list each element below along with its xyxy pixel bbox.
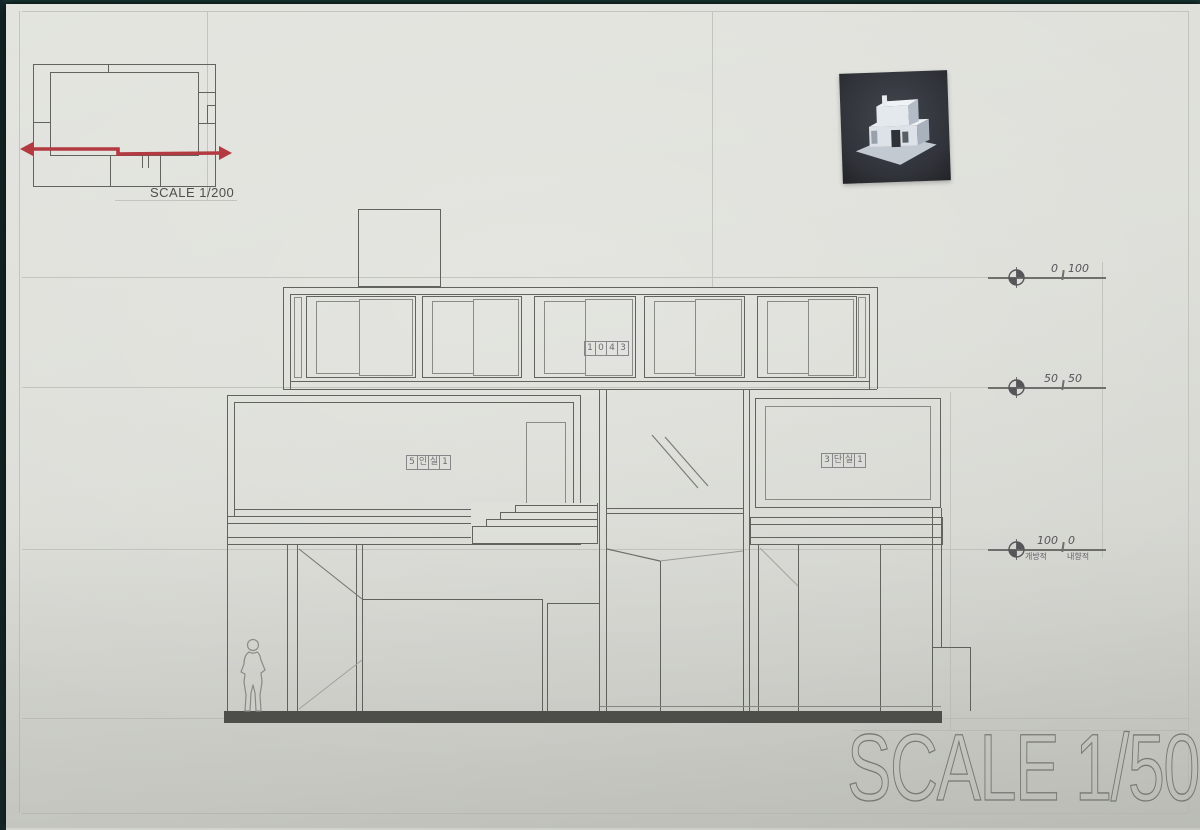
pencil-line — [750, 544, 943, 545]
stair-volume-perspective — [606, 546, 746, 566]
pencil-line — [606, 513, 743, 514]
pencil-line — [932, 647, 970, 648]
pencil-line — [654, 301, 696, 374]
pencil-line — [1061, 380, 1064, 390]
window-panel — [306, 296, 416, 378]
pencil-line — [283, 287, 284, 389]
pencil-line — [283, 287, 877, 288]
pencil-line — [942, 517, 943, 545]
pencil-line — [22, 277, 988, 278]
room-label-living: 5인실1 — [407, 455, 451, 470]
pencil-line — [573, 402, 574, 509]
pencil-line — [808, 299, 854, 376]
level-marker-roof: 0 100 — [980, 254, 1120, 300]
pencil-line — [767, 301, 809, 374]
pencil-line — [432, 301, 474, 374]
level-marker-second-floor: 50 50 — [980, 364, 1120, 410]
right-bay-mark — [758, 546, 803, 591]
pencil-line — [585, 299, 633, 376]
pencil-line — [542, 599, 543, 711]
glazing-marks — [640, 428, 720, 494]
pencil-line — [473, 299, 519, 376]
pencil-line — [294, 297, 302, 378]
pencil-line — [1102, 262, 1103, 558]
pencil-line — [291, 381, 869, 382]
pencil-line — [750, 537, 943, 538]
pencil-line — [515, 505, 516, 512]
pencil-line — [486, 519, 487, 526]
pencil-line — [290, 294, 291, 389]
pencil-line — [199, 123, 216, 124]
pencil-line — [1061, 270, 1064, 280]
pencil-line — [877, 287, 878, 389]
pencil-line — [199, 92, 216, 93]
pencil-line — [750, 524, 943, 525]
sheet-scale-title: SCALE 1/50 — [835, 722, 1199, 814]
model-photo — [839, 70, 951, 184]
pencil-line — [234, 402, 573, 403]
room-label-upper: 1043 — [585, 341, 629, 356]
penthouse — [358, 209, 441, 287]
pencil-line — [880, 545, 881, 711]
pencil-line — [950, 392, 951, 730]
window-panel — [757, 296, 857, 378]
pencil-line — [227, 544, 580, 545]
pencil-line — [471, 503, 598, 543]
pencil-line — [599, 389, 600, 711]
pencil-line — [606, 508, 743, 509]
room-label-right: 3단실1 — [822, 453, 866, 468]
pencil-line — [362, 599, 542, 600]
pencil-line — [207, 105, 216, 106]
pencil-line — [22, 549, 988, 550]
pencil-line — [472, 526, 597, 527]
pencil-line — [207, 105, 208, 123]
pencil-line — [500, 512, 501, 519]
pencil-line — [547, 603, 599, 604]
garage-perspective — [296, 546, 366, 714]
pencil-line — [712, 11, 713, 287]
pencil-line — [597, 503, 598, 544]
pencil-line — [544, 301, 586, 374]
pencil-line — [227, 395, 580, 396]
pencil-line — [33, 122, 50, 123]
pencil-line — [695, 299, 742, 376]
pencil-line — [486, 519, 597, 520]
pencil-line — [749, 389, 750, 711]
pencil-line — [941, 508, 942, 647]
pencil-line — [359, 299, 413, 376]
pencil-line — [500, 512, 597, 513]
pencil-line — [600, 706, 941, 707]
pencil-line — [750, 517, 751, 545]
pencil-line — [108, 64, 109, 72]
pencil-line — [291, 294, 869, 295]
pencil-line — [472, 526, 473, 543]
section-cut-line — [18, 136, 238, 164]
pencil-line — [858, 297, 866, 378]
pencil-line — [515, 505, 597, 506]
pencil-line — [283, 389, 877, 390]
pencil-line — [316, 301, 360, 374]
pencil-line — [19, 11, 20, 813]
window-panel — [644, 296, 745, 378]
drawing-sheet: SCALE 1/200 — [6, 4, 1200, 830]
person-figure — [236, 637, 270, 715]
sheet-content: SCALE 1/200 — [0, 0, 1200, 828]
pencil-line — [932, 508, 933, 711]
pencil-line — [287, 545, 288, 711]
window-panel — [422, 296, 522, 378]
pencil-line — [234, 402, 235, 516]
pencil-line — [22, 11, 1188, 12]
pencil-line — [970, 647, 971, 711]
pencil-line — [115, 200, 237, 201]
pencil-line — [1061, 542, 1064, 552]
pencil-line — [660, 561, 661, 711]
pencil-line — [22, 387, 988, 388]
level-marker-ground: 100 0 개방적 내향적 — [980, 526, 1120, 572]
pencil-line — [472, 543, 598, 544]
interior-door — [526, 422, 566, 510]
pencil-line — [227, 395, 228, 711]
plan-scale-label: SCALE 1/200 — [150, 185, 242, 200]
window-panel — [534, 296, 636, 378]
pencil-line — [750, 517, 943, 518]
pencil-line — [869, 294, 870, 389]
pencil-line — [1188, 11, 1189, 813]
pencil-line — [547, 603, 548, 711]
